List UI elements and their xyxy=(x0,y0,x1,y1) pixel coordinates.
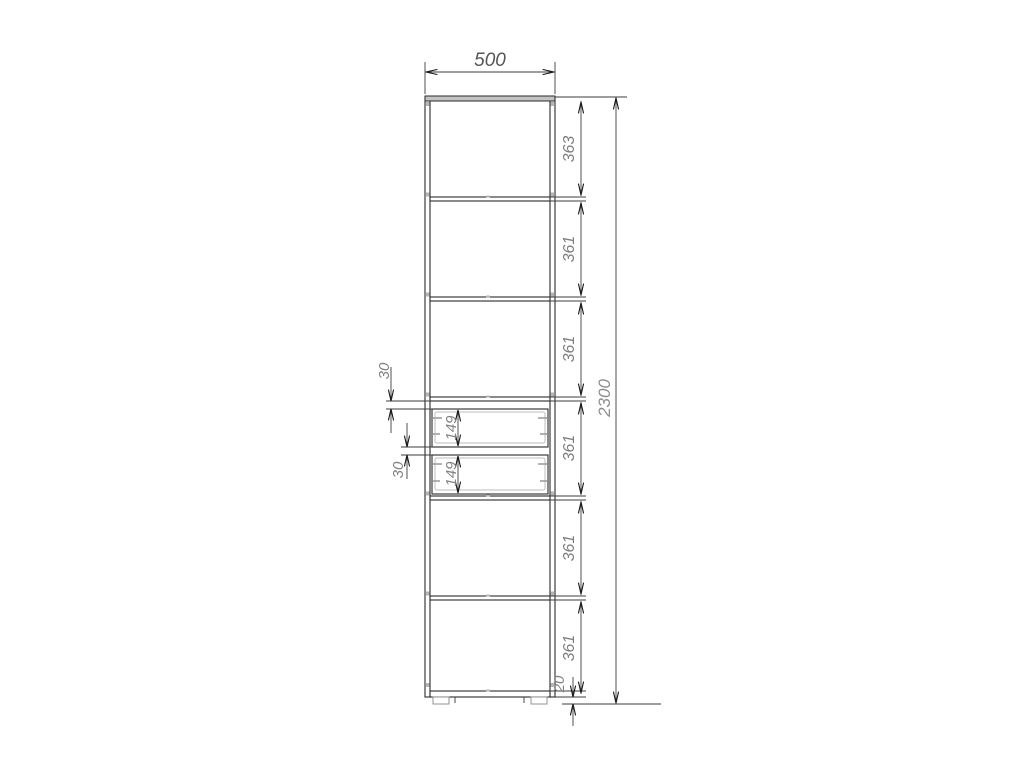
dim-drawer-gap-2-label: 30 xyxy=(390,461,407,478)
shelf-5 xyxy=(430,596,550,600)
dim-base-height-label: 20 xyxy=(551,675,568,693)
top-panel xyxy=(425,96,555,101)
drawing-canvas: 500 363 361 361 xyxy=(0,0,1024,768)
dim-section-4-label: 361 xyxy=(561,435,578,462)
dim-overall-height: 2300 xyxy=(562,97,661,704)
right-foot xyxy=(531,697,547,704)
dim-drawer-front-2-label: 149 xyxy=(443,461,460,487)
dim-section-4: 361 xyxy=(561,402,584,495)
dim-section-3-label: 361 xyxy=(561,336,578,363)
dim-drawer-front-1-label: 149 xyxy=(443,415,460,441)
shelf-4 xyxy=(430,496,550,500)
dim-section-3: 361 xyxy=(561,302,584,396)
dim-overall-height-label: 2300 xyxy=(595,379,614,418)
dim-base-height: 20 xyxy=(551,675,576,726)
dim-section-2-label: 361 xyxy=(561,236,578,263)
dim-section-6-label: 361 xyxy=(561,635,578,662)
dim-section-5: 361 xyxy=(561,501,584,595)
dim-drawer-front-2: 149 xyxy=(443,456,461,493)
dim-drawer-gap-1: 30 xyxy=(376,362,432,433)
dim-drawer-gap-1-label: 30 xyxy=(376,362,393,379)
dim-sections: 363 361 361 361 361 xyxy=(550,97,627,697)
left-foot xyxy=(433,697,449,704)
dim-section-1: 363 xyxy=(561,101,584,196)
dim-width-label: 500 xyxy=(474,50,506,71)
furniture-dimension-drawing: 500 363 361 361 xyxy=(0,0,1024,768)
cabinet-outline xyxy=(425,96,555,704)
shelf-2 xyxy=(430,297,550,301)
dim-section-2: 361 xyxy=(561,202,584,296)
shelf-3 xyxy=(430,397,550,401)
bottom-panel xyxy=(430,691,550,697)
dim-section-5-label: 361 xyxy=(561,535,578,562)
dim-section-1-label: 363 xyxy=(561,136,578,163)
shelf-1 xyxy=(430,197,550,201)
dim-width: 500 xyxy=(425,50,555,94)
left-side-panel xyxy=(425,97,430,697)
